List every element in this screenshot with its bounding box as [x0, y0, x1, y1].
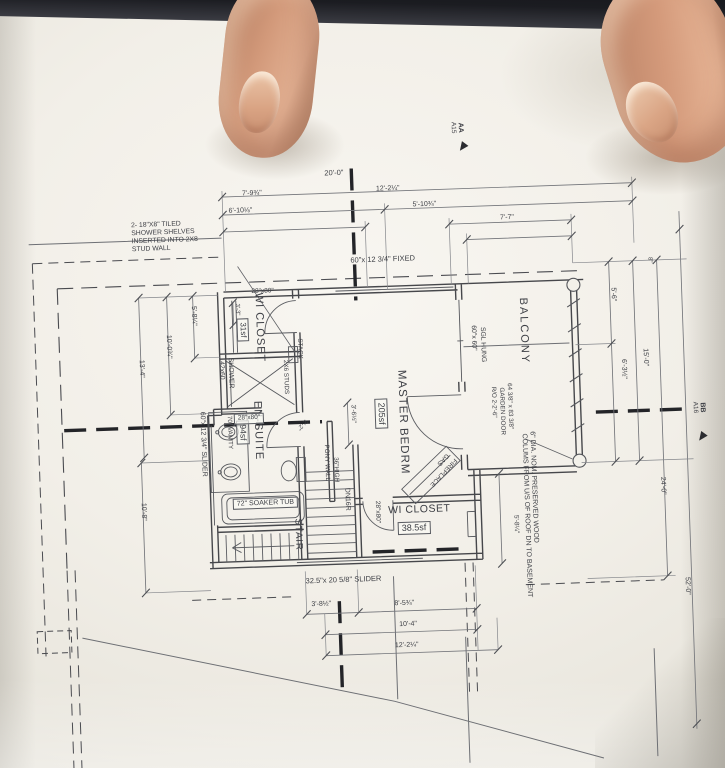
dim-10-8: 10'-8"	[139, 503, 147, 521]
section-marker-bb-sheet: A16	[691, 402, 698, 414]
dim-24-0: 24'-0"	[659, 477, 667, 495]
vanity-label: 70" VANITY	[225, 416, 233, 449]
dim-15-0: 15'-0"	[641, 348, 649, 366]
section-marker-bb: BB	[698, 402, 706, 412]
dim-5-8-1-4-right: 5'-8¼"	[512, 515, 519, 534]
dim-10-0-3-4: 10'-0¾"	[165, 335, 173, 359]
room-stair: STAIR	[292, 518, 303, 551]
garden-door-label-1: R/O 2-2'-6"	[489, 387, 497, 418]
dim-12-2-1-4: 12'-2¼"	[376, 185, 400, 193]
area-wicloset-bottom: 38.5sf	[398, 521, 431, 536]
room-wicloset-bottom: WI CLOSET	[388, 503, 451, 516]
dim-6-3-1-2: 6'-3½"	[620, 359, 628, 379]
dim-7-9-3-4: 7'-9¾"	[242, 190, 262, 198]
dim-3-8-1-2: 3'-8½"	[311, 600, 331, 608]
pony-wall-label-2: PONY WALL	[322, 444, 330, 481]
door-label-closet-top: 28"x80"	[251, 288, 274, 296]
floorplan-drawing: 2- 18"X8" TILED SHOWER SHELVES INSERTED …	[0, 0, 725, 768]
shower-word-label: SHOWER	[227, 358, 235, 389]
section-marker-aa: AA	[456, 123, 464, 133]
dim-10-4: 10'-4"	[399, 620, 417, 628]
dim-6-10-1-8: 6'-10⅛"	[229, 207, 253, 215]
door-label-ensuite: 28"x80"	[234, 413, 265, 425]
sgl-hung-label-2: SGL HUNG	[479, 327, 487, 362]
dim-20-0: 20'-0"	[324, 169, 343, 178]
dim-3-3: 3'-3"	[234, 303, 241, 315]
dim-5-10-3-4: 5'-10¾"	[412, 201, 436, 209]
left-fingernail	[234, 68, 284, 136]
floorplan-linework	[0, 0, 725, 768]
sink-2	[220, 464, 241, 481]
area-master: 205sf	[374, 398, 388, 428]
photo-of-floorplan: 2- 18"X8" TILED SHOWER SHELVES INSERTED …	[0, 0, 725, 768]
room-balcony: BALCONY	[516, 297, 530, 364]
door-label-closet-bottom: 28"x80"	[373, 501, 381, 524]
dim-5-8-1-4-left: 5'-8¼"	[190, 306, 198, 326]
stair-direction-arrow	[232, 541, 294, 553]
toilet-bowl	[281, 461, 297, 482]
garden-door-label-2: GARDEN DOOR	[497, 387, 505, 435]
section-marker-aa-sheet: A15	[449, 122, 456, 134]
wood-column-bottom	[573, 454, 586, 467]
dim-7-7: 7'-7"	[500, 214, 514, 222]
dim-5-6: 5'-6"	[609, 287, 617, 301]
pony-wall-label-1: 36"HIGH	[332, 457, 339, 482]
stair-dn16r-label: DN16R	[343, 488, 351, 511]
room-ensuite: EN-SUITE	[251, 401, 265, 461]
dim-52-0: 52'-0"	[683, 577, 691, 595]
stack-label: STACK	[296, 338, 303, 359]
note-shelves-line4: STUD WALL	[132, 245, 171, 253]
garden-door-label-3: 64 3/8" x 83 3/8"	[505, 383, 513, 429]
witness-lines	[132, 175, 700, 662]
soaker-tub-label: 72" SOAKER TUB	[233, 497, 299, 511]
area-wicloset-top: 31sf	[236, 318, 249, 342]
studs-label: 2X6 STUDS	[281, 360, 289, 395]
dim-13-4: 13'-4"	[137, 360, 145, 378]
room-wicloset-top: WI CLOSET	[252, 293, 266, 363]
dim-8-5-3-4: 8'-5¾"	[394, 600, 414, 608]
dim-8in: 8"	[646, 257, 652, 263]
sgl-hung-label-1: 60"x 60"	[470, 325, 478, 350]
dimension-ticks	[128, 177, 701, 747]
wood-column-top	[567, 278, 580, 291]
shower-size-label: 42x60	[218, 361, 226, 380]
dim-12-2-1-4-bottom: 12'-2¼"	[395, 641, 419, 649]
dim-3-6-1-2: 3'-6½"	[349, 404, 356, 423]
stair-treads	[224, 471, 357, 562]
